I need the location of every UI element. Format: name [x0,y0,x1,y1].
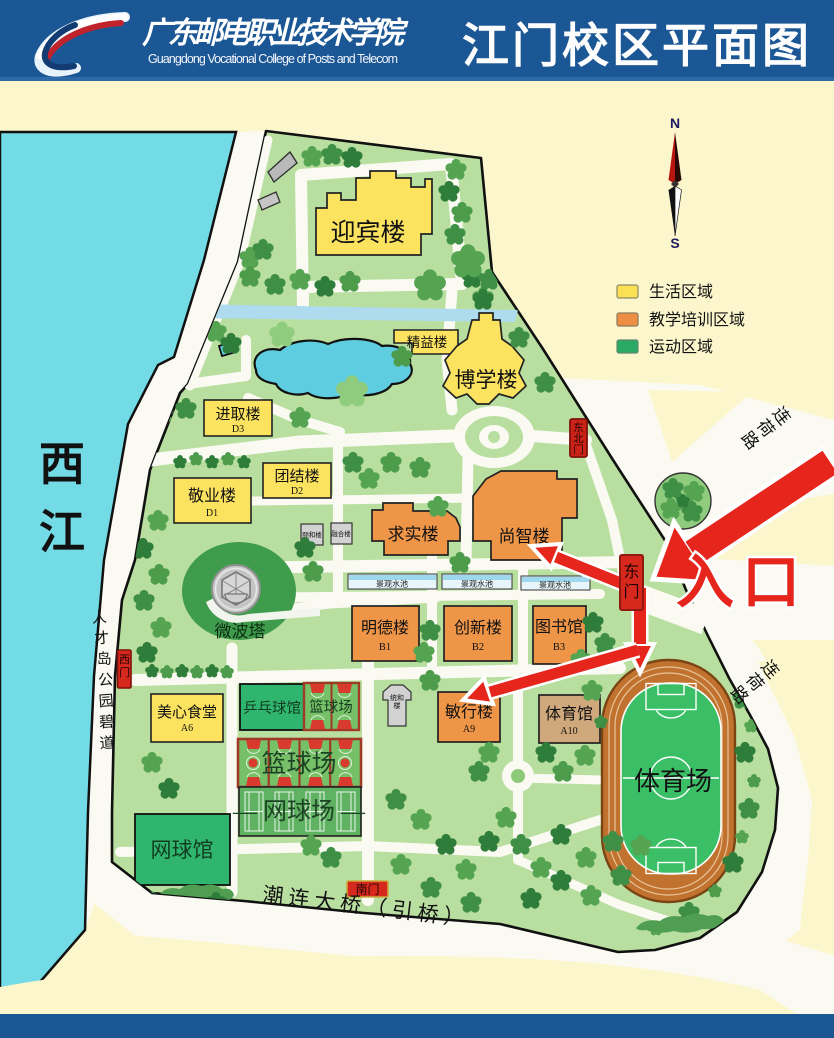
svg-text:公: 公 [98,672,114,689]
svg-text:融合楼: 融合楼 [331,529,351,538]
svg-text:门: 门 [119,665,130,679]
svg-text:B3: B3 [553,642,565,653]
svg-text:江: 江 [39,507,85,558]
svg-text:道: 道 [99,734,115,752]
svg-text:门: 门 [623,583,639,601]
svg-text:碧: 碧 [99,713,115,731]
svg-text:才: 才 [94,630,110,648]
svg-text:求实楼: 求实楼 [388,525,439,544]
svg-text:尚智楼: 尚智楼 [499,527,550,546]
svg-text:A6: A6 [181,723,193,734]
svg-text:景观水池: 景观水池 [539,580,571,590]
svg-text:教学培训区域: 教学培训区域 [649,311,745,329]
svg-text:景观水池: 景观水池 [376,579,408,589]
svg-text:北: 北 [573,433,584,445]
svg-text:江门校区平面图: 江门校区平面图 [462,21,812,73]
svg-text:A10: A10 [560,726,577,737]
svg-text:精益楼: 精益楼 [407,335,448,350]
svg-text:D3: D3 [232,424,244,435]
svg-text:创新楼: 创新楼 [454,619,502,637]
svg-text:西: 西 [119,654,130,666]
svg-text:网球馆: 网球馆 [151,838,214,862]
svg-text:图书馆: 图书馆 [535,618,583,636]
svg-text:运动区域: 运动区域 [649,338,713,356]
svg-text:N: N [670,115,680,131]
svg-text:园: 园 [98,692,114,710]
svg-text:景观水池: 景观水池 [461,579,493,589]
svg-text:生活区域: 生活区域 [649,283,713,301]
svg-text:团结楼: 团结楼 [274,468,319,485]
svg-text:Guangdong Vocational College o: Guangdong Vocational College of Posts an… [148,52,398,66]
svg-text:入口: 入口 [676,550,808,615]
svg-text:东: 东 [573,421,584,434]
svg-text:进取楼: 进取楼 [215,406,260,423]
svg-text:篮球场: 篮球场 [261,750,336,778]
svg-text:统和: 统和 [390,693,404,702]
svg-text:东: 东 [623,563,639,581]
svg-text:体育场: 体育场 [634,767,712,796]
svg-text:岛: 岛 [96,650,112,668]
svg-text:D2: D2 [291,486,303,497]
svg-text:楼: 楼 [394,701,401,710]
svg-text:迎宾楼: 迎宾楼 [330,219,405,247]
svg-text:美心食堂: 美心食堂 [157,704,217,721]
svg-text:敏行楼: 敏行楼 [445,703,493,721]
svg-text:— 网球场 —: — 网球场 — [232,798,366,825]
svg-text:明德楼: 明德楼 [361,619,409,637]
svg-text:广东邮电职业技术学院: 广东邮电职业技术学院 [142,16,409,50]
svg-text:西: 西 [39,439,85,490]
svg-text:B2: B2 [472,642,484,653]
svg-text:敬业楼: 敬业楼 [188,487,236,505]
svg-text:B1: B1 [379,642,391,653]
svg-text:体育馆: 体育馆 [545,705,593,723]
svg-text:D1: D1 [206,508,218,519]
svg-text:门: 门 [573,443,584,456]
svg-text:乒乓球馆: 乒乓球馆 [243,700,301,717]
svg-text:S: S [670,235,679,251]
svg-text:博学楼: 博学楼 [455,368,518,392]
svg-text:微波塔: 微波塔 [215,622,266,641]
svg-text:人: 人 [91,609,107,627]
svg-text:篮球场: 篮球场 [309,698,353,716]
svg-text:A9: A9 [463,724,475,735]
